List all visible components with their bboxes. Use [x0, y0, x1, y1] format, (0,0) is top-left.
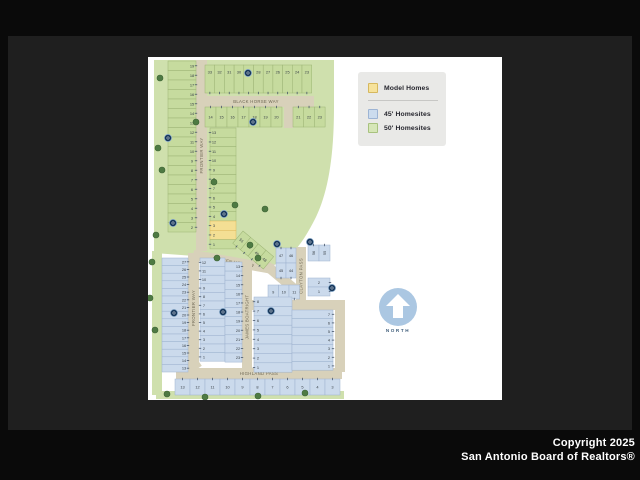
lot [254, 325, 292, 334]
tree-icon [214, 255, 220, 261]
lot-number: 11 [292, 290, 296, 295]
lot-number: 5 [301, 385, 303, 390]
driveway-tick [199, 348, 201, 349]
driveway-tick [241, 357, 243, 358]
lot-number: 7 [271, 385, 273, 390]
lot-section-row2-right: 212223 [293, 106, 325, 127]
street-east-street [335, 308, 345, 372]
lot-number: 5 [191, 196, 193, 201]
north-circle [379, 288, 417, 326]
lot-number: 7 [213, 186, 215, 191]
driveway-tick [195, 151, 197, 152]
lot-number: 56 [311, 251, 316, 255]
driveway-tick [294, 298, 295, 300]
lot-number: 28 [256, 70, 260, 75]
lot-number: 11 [202, 268, 206, 273]
legend-divider [368, 100, 438, 101]
driveway-tick [210, 106, 211, 108]
driveway-tick [199, 271, 201, 272]
driveway-tick [197, 378, 198, 380]
driveway-tick [209, 169, 211, 170]
driveway-tick [195, 132, 197, 133]
driveway-tick [232, 106, 233, 108]
lot-number: 23 [182, 290, 186, 295]
driveway-tick [209, 92, 210, 94]
lot-number: 22 [307, 115, 311, 120]
driveway-tick [199, 288, 201, 289]
driveway-tick [199, 305, 201, 306]
street-label: BLACK HORSE WAY [233, 99, 279, 104]
street-james-boatright: JAMES BOATRIGHT [242, 260, 252, 374]
driveway-tick [319, 106, 320, 108]
lot-number: 6 [213, 195, 215, 200]
marker-badge [169, 219, 176, 226]
tree-icon [255, 255, 261, 261]
driveway-tick [332, 366, 334, 367]
lot-number: 8 [256, 385, 258, 390]
lot-number: 15 [190, 101, 194, 106]
driveway-tick [241, 348, 243, 349]
driveway-tick [195, 170, 197, 171]
driveway-tick [253, 367, 255, 368]
driveway-tick [324, 244, 325, 246]
driveway-tick [199, 296, 201, 297]
driveway-tick [209, 225, 211, 226]
lot-number: 15 [236, 282, 240, 287]
tree-icon [232, 202, 238, 208]
tree-icon [202, 394, 208, 400]
driveway-tick [209, 244, 211, 245]
marker-badge [306, 238, 313, 245]
driveway-tick [187, 360, 189, 361]
lot-section-row2-left: 14151617181920 [205, 106, 282, 127]
lot-number: 16 [236, 291, 240, 296]
street-cross-street [284, 106, 293, 128]
driveway-tick [187, 330, 189, 331]
north-label: NORTH [377, 328, 419, 333]
lot-number: 47 [279, 253, 283, 258]
driveway-tick [253, 311, 255, 312]
lot-number: 19 [182, 320, 186, 325]
driveway-tick [302, 378, 303, 380]
driveway-tick [332, 314, 334, 315]
driveway-tick [248, 92, 249, 94]
street-label: FRONTIER WAY [199, 137, 204, 173]
legend-label: 45' Homesites [384, 111, 431, 118]
driveway-tick [272, 378, 273, 380]
tree-icon [157, 75, 163, 81]
lot-number: 22 [182, 297, 186, 302]
driveway-tick [239, 92, 240, 94]
lot-number: 33 [208, 70, 212, 75]
driveway-tick [241, 330, 243, 331]
lot-number: 17 [236, 300, 240, 305]
driveway-tick [209, 216, 211, 217]
driveway-tick [209, 235, 211, 236]
north-arrow: NORTH [377, 288, 419, 333]
lot-number: 32 [217, 70, 221, 75]
driveway-tick [187, 307, 189, 308]
driveway-tick [332, 348, 334, 349]
legend-label: Model Homes [384, 85, 429, 92]
lot-number: 1 [203, 354, 205, 359]
driveway-tick [195, 217, 197, 218]
driveway-tick [199, 357, 201, 358]
lot-number: 15 [219, 115, 223, 120]
lot-number: 11 [212, 149, 216, 154]
lot [292, 336, 333, 345]
driveway-tick [187, 269, 189, 270]
driveway-tick [187, 299, 189, 300]
legend: Model Homes 45' Homesites 50' Homesites [358, 72, 446, 146]
45-homesites-swatch [368, 109, 378, 119]
driveway-tick [187, 292, 189, 293]
lot-number: 12 [212, 139, 216, 144]
driveway-tick [195, 113, 197, 114]
driveway-tick [195, 94, 197, 95]
driveway-tick [221, 106, 222, 108]
driveway-tick [277, 92, 278, 94]
lot-number: 1 [328, 363, 330, 368]
driveway-tick [243, 106, 244, 108]
driveway-tick [199, 262, 201, 263]
tree-icon [159, 167, 165, 173]
tree-icon [211, 179, 217, 185]
driveway-tick [195, 103, 197, 104]
lot-number: 21 [182, 305, 186, 310]
driveway-tick [187, 345, 189, 346]
lot-section-clayton-west-1: 4746 [276, 247, 296, 263]
driveway-tick [195, 208, 197, 209]
street-label: FRONTIER WAY [191, 290, 196, 326]
lot-number: 18 [190, 73, 194, 78]
driveway-tick [195, 141, 197, 142]
driveway-tick [257, 378, 258, 380]
lot-number: 26 [276, 70, 280, 75]
tree-icon [164, 391, 170, 397]
driveway-tick [241, 312, 243, 313]
marker-badge [267, 307, 274, 314]
tree-icon [152, 327, 158, 333]
lot-number: 5 [257, 327, 259, 332]
copyright-line2: San Antonio Board of Realtors® [461, 451, 635, 465]
lot-number: 1 [257, 365, 259, 370]
lot [292, 344, 333, 353]
lot-number: 21 [236, 337, 240, 342]
lot-number: 12 [195, 385, 199, 390]
tree-icon [149, 259, 155, 265]
lot-number: 6 [328, 320, 330, 325]
lot-number: 9 [241, 385, 243, 390]
lot-number: 2 [191, 225, 193, 230]
lot-number: 23 [305, 70, 309, 75]
driveway-tick [229, 92, 230, 94]
driveway-tick [199, 322, 201, 323]
lot-section-bottom-row: 131211109876543 [175, 378, 340, 395]
driveway-tick [242, 378, 243, 380]
lot-number: 18 [182, 328, 186, 333]
driveway-tick [253, 339, 255, 340]
legend-item-model-homes: Model Homes [368, 81, 438, 95]
legend-item-45-homesites: 45' Homesites [368, 107, 438, 121]
street-label: JAMES BOATRIGHT [245, 295, 250, 340]
lot [254, 316, 292, 325]
lot-number: 2 [318, 280, 320, 285]
driveway-tick [254, 106, 255, 108]
lot-number: 11 [190, 139, 194, 144]
street-surface [335, 308, 345, 372]
driveway-tick [297, 92, 298, 94]
driveway-tick [227, 378, 228, 380]
lot-section-east-pair: 21 [308, 278, 331, 296]
green-area [152, 251, 162, 395]
driveway-tick [253, 348, 255, 349]
lot-number: 22 [236, 346, 240, 351]
marker-badge [164, 134, 171, 141]
driveway-tick [209, 151, 211, 152]
north-arrow-icon [379, 288, 417, 326]
lot [292, 362, 333, 371]
lot-number: 3 [213, 223, 215, 228]
lot-number: 13 [182, 366, 186, 371]
driveway-tick [187, 368, 189, 369]
lot-section-top-row: 3332313029282726252423 [205, 65, 312, 94]
driveway-tick [332, 357, 334, 358]
street-surface [284, 106, 293, 128]
driveway-tick [253, 301, 255, 302]
lot-number: 16 [230, 115, 234, 120]
lot-number: 7 [191, 177, 193, 182]
lot-number: 3 [191, 215, 193, 220]
tree-icon [302, 390, 308, 396]
tree-icon [247, 242, 253, 248]
tree-icon [153, 232, 159, 238]
marker-badge [220, 210, 227, 217]
lot-number: 1 [318, 289, 320, 294]
lot [254, 335, 292, 344]
driveway-tick [187, 261, 189, 262]
driveway-tick [253, 320, 255, 321]
legend-label: 50' Homesites [384, 125, 431, 132]
driveway-tick [199, 314, 201, 315]
lot-number: 12 [202, 260, 206, 265]
lot-number: 19 [190, 63, 194, 68]
driveway-tick [219, 92, 220, 94]
lot-number: 6 [191, 187, 193, 192]
driveway-tick [258, 92, 259, 94]
driveway-tick [187, 337, 189, 338]
lot-number: 31 [227, 70, 231, 75]
marker-badge [244, 69, 251, 76]
driveway-tick [276, 106, 277, 108]
lot [254, 363, 292, 372]
lot-number: 16 [190, 92, 194, 97]
driveway-tick [195, 84, 197, 85]
lot-number: 5 [203, 320, 205, 325]
lot-number: 27 [182, 259, 186, 264]
driveway-tick [182, 378, 183, 380]
marker-badge [170, 309, 177, 316]
lot-number: 2 [257, 356, 259, 361]
tree-icon [262, 206, 268, 212]
lot-number: 8 [203, 294, 205, 299]
lot-number: 17 [190, 82, 194, 87]
lot-number: 16 [182, 343, 186, 348]
screenshot-root: { "window": { "copyright_line1": "Copyri… [0, 0, 640, 480]
tree-icon [255, 393, 261, 399]
lot-number: 3 [203, 337, 205, 342]
lot-number: 13 [180, 385, 184, 390]
driveway-tick [287, 378, 288, 380]
lot-number: 19 [236, 319, 240, 324]
lot-number: 12 [190, 130, 194, 135]
lot-number: 7 [257, 309, 259, 314]
lot-section-inner-col: 13121110987654321 [209, 128, 236, 249]
lot-number: 3 [257, 346, 259, 351]
driveway-tick [291, 277, 292, 279]
driveway-tick [195, 75, 197, 76]
lot-number: 25 [182, 275, 186, 280]
lot-number: 13 [212, 130, 216, 135]
marker-badge [249, 118, 256, 125]
driveway-tick [332, 378, 333, 380]
site-map-svg: BLACK HORSE WAYFRONTIER WAYBROKEN HOLLOW… [148, 57, 502, 400]
driveway-tick [241, 293, 243, 294]
driveway-tick [241, 303, 243, 304]
lot-number: 26 [182, 267, 186, 272]
street-black-horse-way: BLACK HORSE WAY [198, 96, 314, 107]
driveway-tick [195, 227, 197, 228]
driveway-tick [195, 65, 197, 66]
tree-icon [148, 295, 153, 301]
lot-number: 5 [328, 329, 330, 334]
marker-badge [273, 240, 280, 247]
lot-section-clayton-west-2: 4544 [276, 263, 296, 279]
driveway-tick [332, 323, 334, 324]
driveway-tick [253, 330, 255, 331]
lot-section-clayton-east: 5655 [308, 244, 330, 261]
driveway-tick [332, 331, 334, 332]
lot-number: 23 [236, 355, 240, 360]
copyright-line1: Copyright 2025 [461, 437, 635, 451]
lot-number: 27 [266, 70, 270, 75]
lot-number: 6 [286, 385, 288, 390]
lot-number: 6 [257, 318, 259, 323]
copyright-text: Copyright 2025 San Antonio Board of Real… [461, 437, 635, 464]
driveway-tick [209, 132, 211, 133]
lot-number: 55 [322, 251, 327, 255]
lot-number: 23 [318, 115, 322, 120]
marker-badge [328, 284, 335, 291]
driveway-tick [195, 198, 197, 199]
model-homes-swatch [368, 83, 378, 93]
tree-icon [155, 145, 161, 151]
driveway-tick [291, 247, 292, 249]
driveway-tick [209, 207, 211, 208]
driveway-tick [265, 106, 266, 108]
driveway-tick [306, 92, 307, 94]
lot-number: 3 [331, 385, 333, 390]
driveway-tick [187, 284, 189, 285]
lot-number: 9 [272, 290, 274, 295]
lot [292, 310, 333, 319]
marker-badge [219, 308, 226, 315]
driveway-tick [209, 188, 211, 189]
lot-number: 9 [203, 286, 205, 291]
site-plan-page: BLACK HORSE WAYFRONTIER WAYBROKEN HOLLOW… [148, 57, 502, 400]
lot-number: 2 [328, 355, 330, 360]
lot-number: 19 [263, 115, 267, 120]
lot-number: 1 [213, 242, 215, 247]
driveway-tick [332, 340, 334, 341]
lot-section-central-right: 1314151617181920212223 [225, 262, 243, 362]
driveway-tick [187, 315, 189, 316]
50-homesites-swatch [368, 123, 378, 133]
lot-number: 17 [182, 335, 186, 340]
driveway-tick [199, 339, 201, 340]
lot-number: 45 [279, 268, 283, 273]
driveway-tick [317, 378, 318, 380]
driveway-tick [241, 284, 243, 285]
lot-number: 3 [328, 346, 330, 351]
lot-number: 5 [213, 205, 215, 210]
lot-number: 2 [213, 232, 215, 237]
driveway-tick [241, 275, 243, 276]
driveway-tick [187, 353, 189, 354]
lot-number: 8 [191, 168, 193, 173]
lot-number: 46 [289, 253, 293, 258]
driveway-tick [281, 247, 282, 249]
lot [254, 344, 292, 353]
lot-number: 25 [285, 70, 289, 75]
driveway-tick [209, 179, 211, 180]
driveway-tick [253, 358, 255, 359]
driveway-tick [209, 197, 211, 198]
driveway-tick [195, 160, 197, 161]
lot-number: 2 [203, 346, 205, 351]
legend-item-50-homesites: 50' Homesites [368, 121, 438, 135]
driveway-tick [268, 92, 269, 94]
driveway-tick [298, 106, 299, 108]
lot-number: 7 [328, 312, 330, 317]
lot [292, 353, 333, 362]
lot-number: 9 [213, 167, 215, 172]
lot [292, 319, 333, 328]
lot-number: 7 [203, 303, 205, 308]
driveway-tick [199, 331, 201, 332]
lot [254, 353, 292, 362]
driveway-tick [281, 277, 282, 279]
driveway-tick [187, 322, 189, 323]
driveway-tick [329, 282, 331, 283]
lot-number: 17 [241, 115, 245, 120]
lot-number: 21 [296, 115, 300, 120]
driveway-tick [195, 189, 197, 190]
lot-section-left-col-upper: 1918171615141312111098765432 [168, 61, 197, 232]
driveway-tick [195, 179, 197, 180]
driveway-tick [241, 266, 243, 267]
lot-number: 18 [236, 310, 240, 315]
driveway-tick [187, 277, 189, 278]
driveway-tick [241, 339, 243, 340]
lot-number: 13 [236, 264, 240, 269]
lot-number: 15 [182, 351, 186, 356]
lot-number: 8 [257, 299, 259, 304]
lot [292, 327, 333, 336]
tree-icon [193, 119, 199, 125]
lot-number: 9 [191, 158, 193, 163]
driveway-tick [209, 160, 211, 161]
